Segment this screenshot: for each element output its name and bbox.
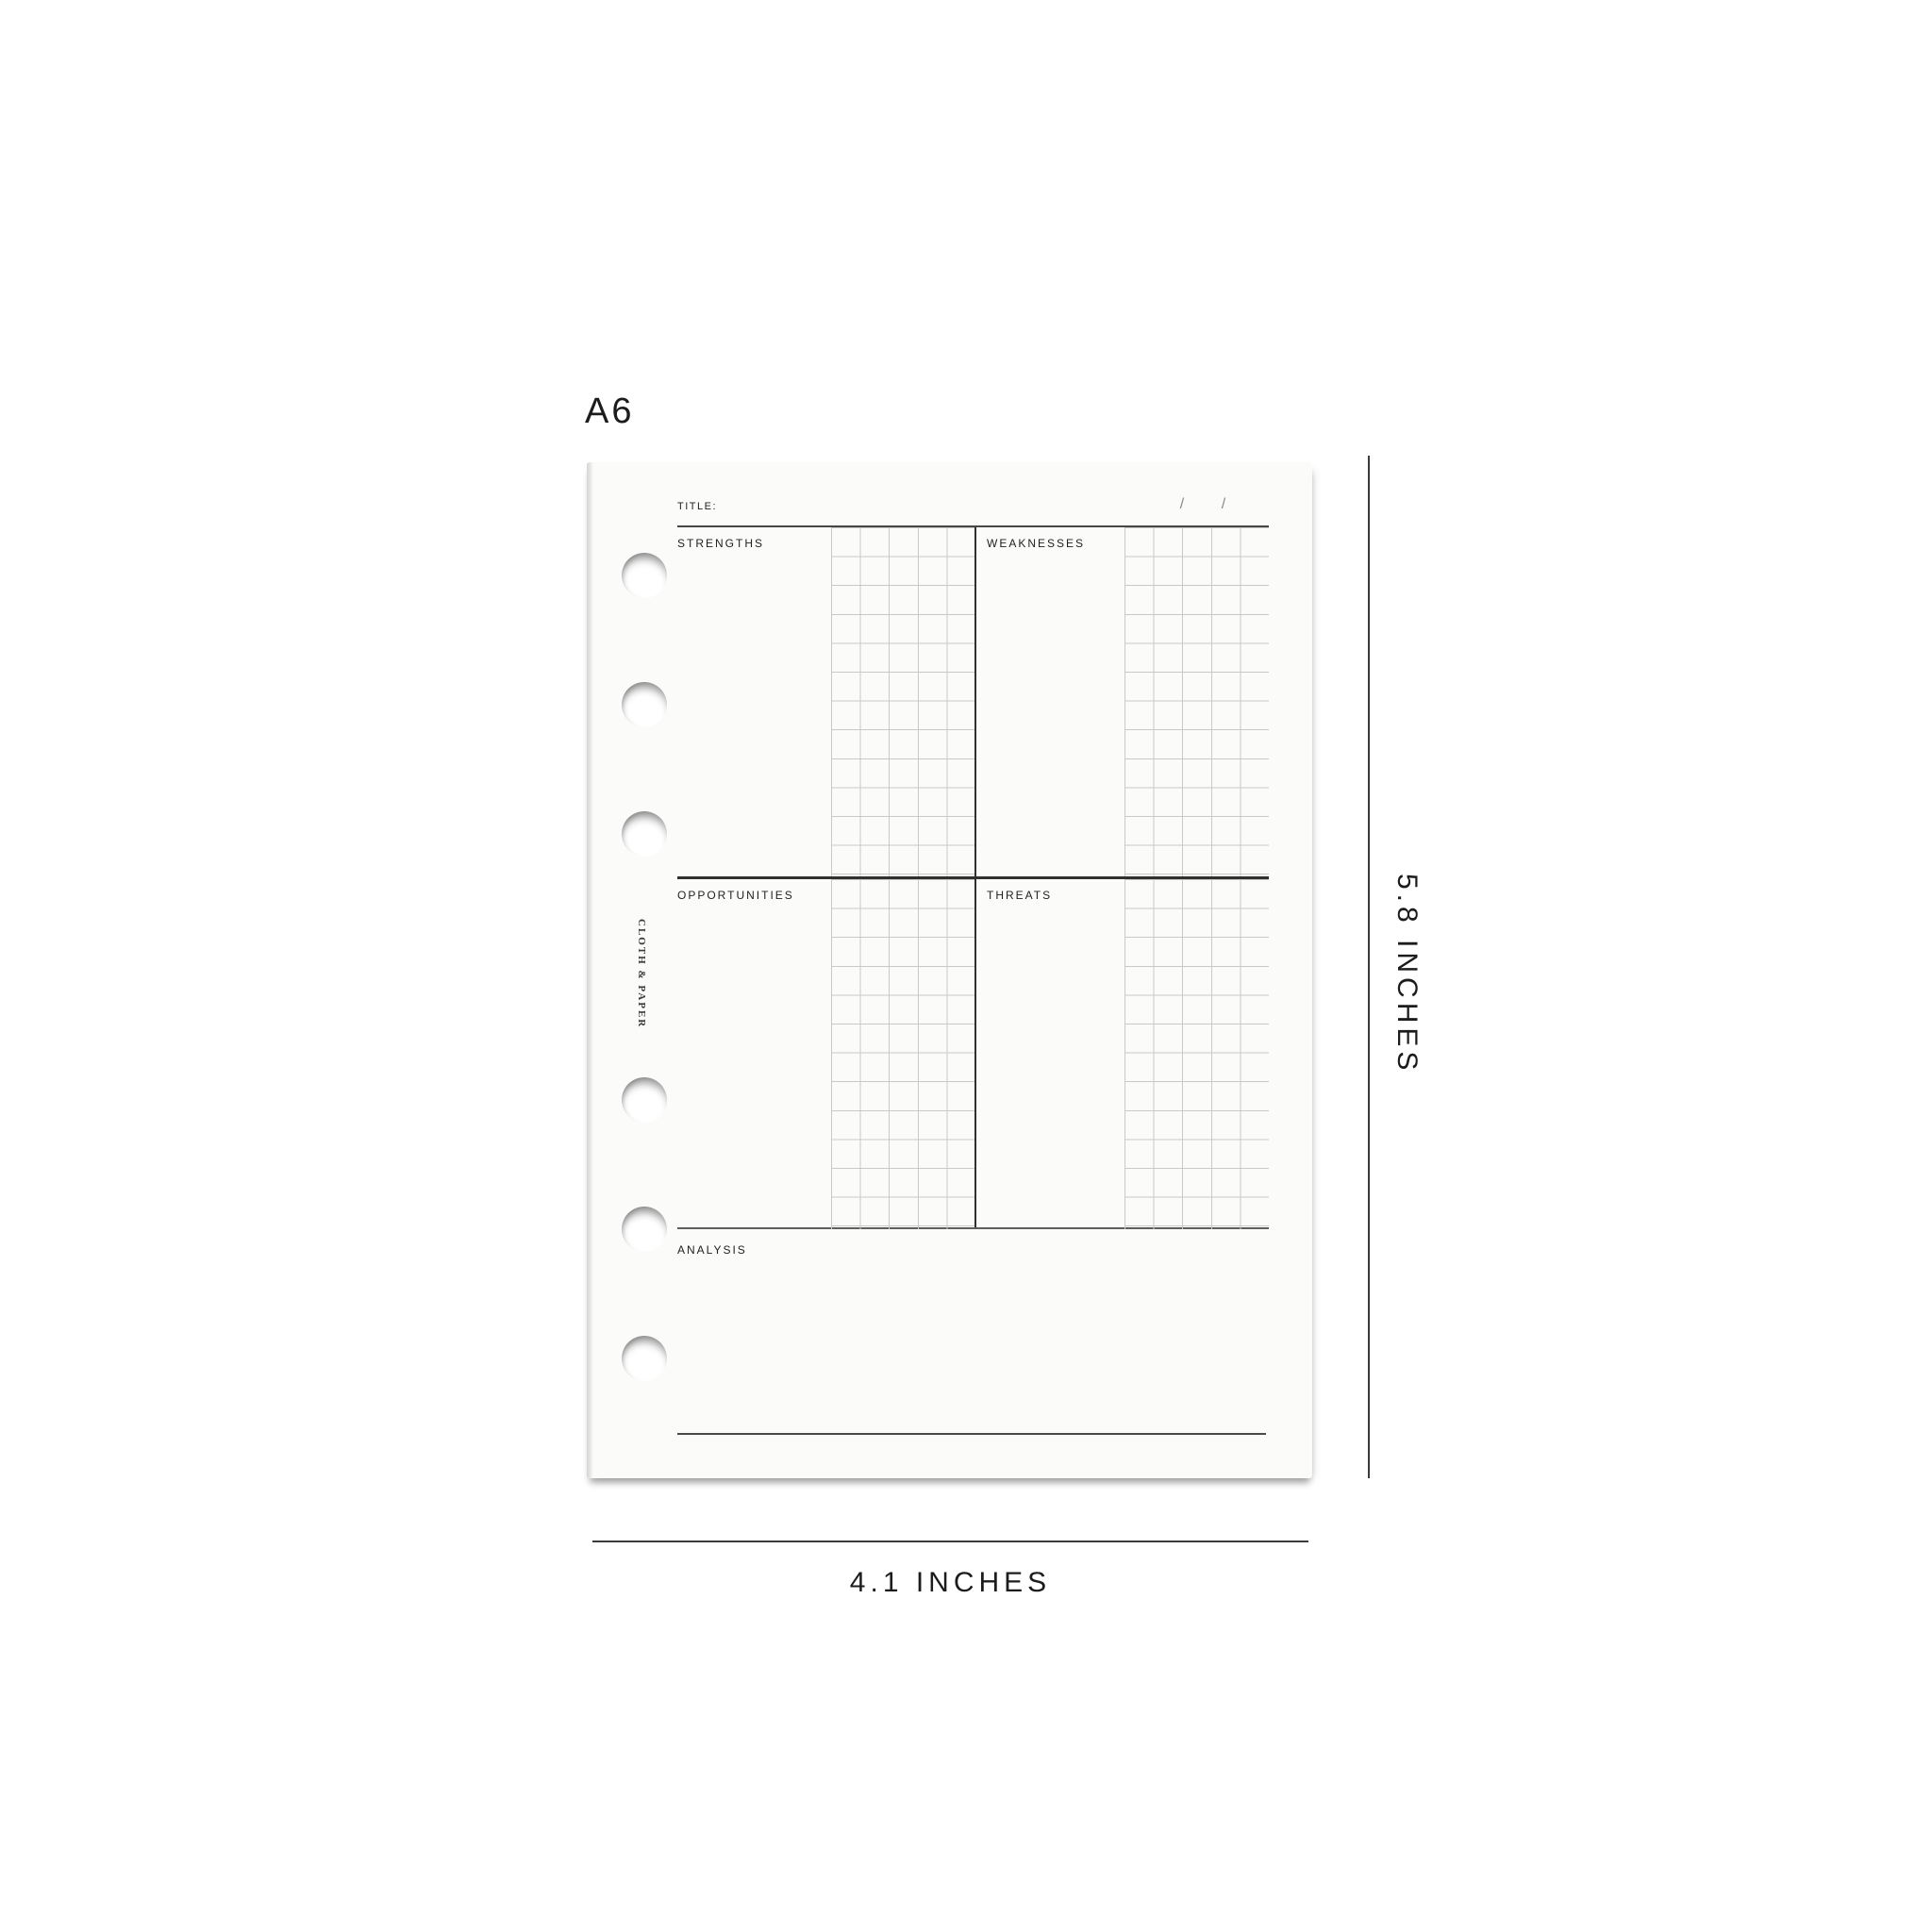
punch-hole [622, 1207, 667, 1252]
quadrant-weaknesses: WEAKNESSES [976, 527, 1269, 876]
date-slash-2: / [1218, 496, 1229, 513]
height-dimension-label: 5.8 INCHES [1391, 874, 1423, 1074]
date-slash-1: / [1176, 496, 1188, 513]
height-dimension-line [1368, 456, 1370, 1478]
weaknesses-grid [1124, 527, 1269, 876]
punch-hole [622, 811, 667, 857]
analysis-label: ANALYSIS [677, 1243, 747, 1257]
quadrant-threats: THREATS [976, 879, 1269, 1229]
quadrant-opportunities: OPPORTUNITIES [677, 879, 974, 1229]
opportunities-label: OPPORTUNITIES [677, 889, 794, 902]
punch-hole [622, 1077, 667, 1123]
strengths-label: STRENGTHS [677, 537, 764, 550]
width-dimension-label: 4.1 INCHES [592, 1567, 1308, 1599]
threats-label: THREATS [987, 889, 1052, 902]
threats-grid [1124, 879, 1269, 1229]
strengths-grid [831, 527, 974, 876]
weaknesses-label: WEAKNESSES [987, 537, 1085, 550]
width-dimension-line [592, 1541, 1308, 1542]
table-horizontal-divider [677, 876, 1269, 879]
punch-hole [622, 553, 667, 598]
page-left-edge-shadow [587, 462, 593, 1478]
brand-vertical-text: CLOTH & PAPER [636, 919, 647, 1024]
punch-hole [622, 1336, 667, 1381]
title-label: TITLE: [677, 501, 717, 512]
page-size-label: A6 [585, 391, 634, 432]
planner-page: CLOTH & PAPER TITLE: / / STRENGTHS WEAKN… [587, 462, 1312, 1478]
quadrant-strengths: STRENGTHS [677, 527, 974, 876]
opportunities-grid [831, 879, 974, 1229]
analysis-bottom-line [677, 1433, 1266, 1435]
punch-hole [622, 682, 667, 727]
swot-table: STRENGTHS WEAKNESSES OPPORTUNITIES THREA… [677, 527, 1269, 1229]
